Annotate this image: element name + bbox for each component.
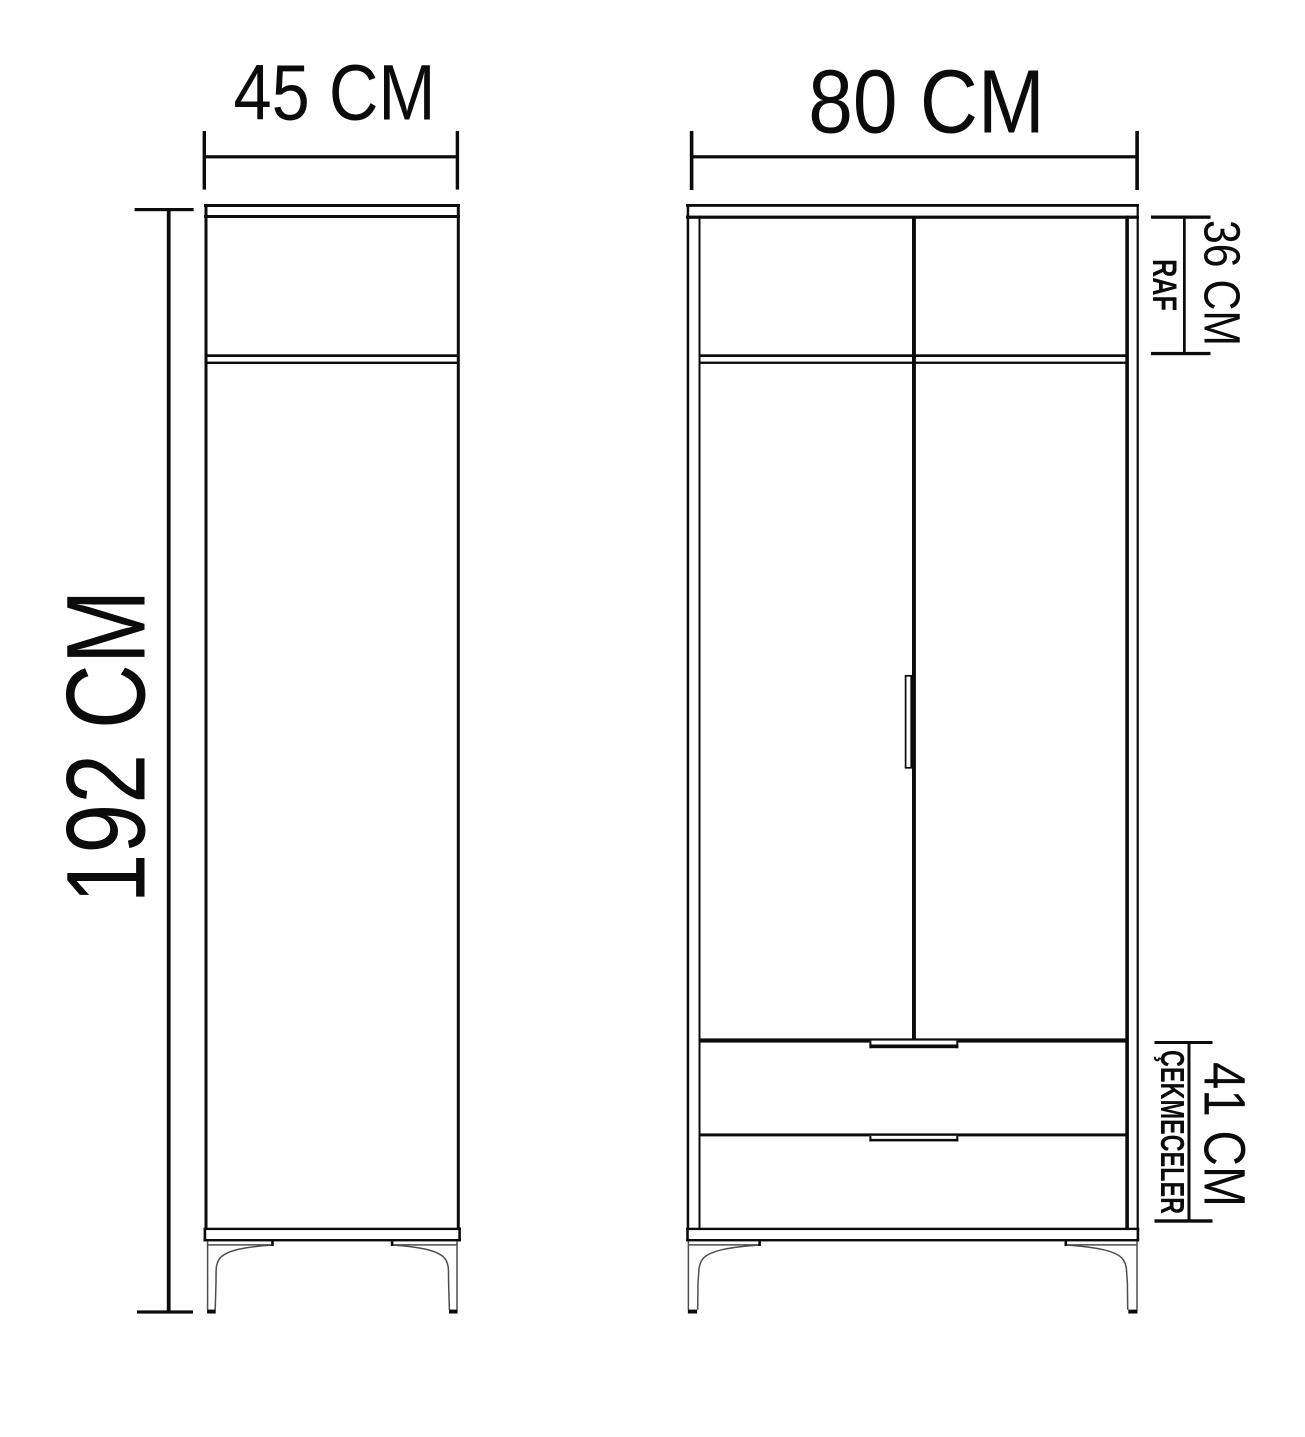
svg-text:36 CM: 36 CM: [1194, 220, 1251, 346]
svg-text:80 CM: 80 CM: [808, 53, 1045, 153]
svg-text:45 CM: 45 CM: [234, 48, 436, 136]
svg-text:192 CM: 192 CM: [43, 590, 169, 904]
svg-text:41 CM: 41 CM: [1192, 1062, 1257, 1207]
svg-text:RAF: RAF: [1145, 259, 1183, 311]
svg-text:ÇEKMECELER: ÇEKMECELER: [1153, 1050, 1190, 1214]
